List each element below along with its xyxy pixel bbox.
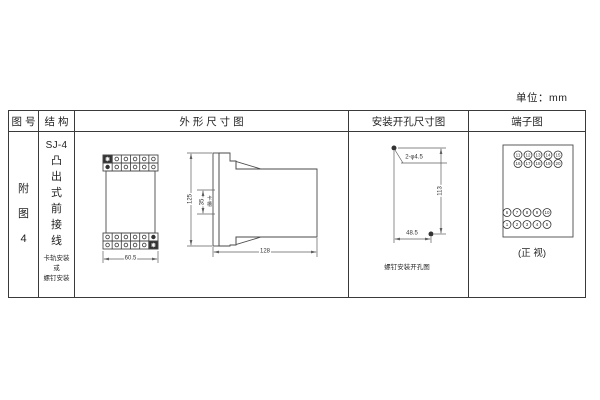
spec-table: 图 号 结 构 外 形 尺 寸 图 安装开孔尺寸图 端子图 附 图 4 SJ-4… — [8, 110, 586, 298]
unit-label: 单位：mm — [516, 90, 568, 105]
mounting-caption: 螺钉安装开孔图 — [384, 261, 430, 271]
vertical-spacing-value: 113 — [438, 185, 445, 197]
terminal-caption: (正 视) — [518, 245, 546, 259]
front-width-value: 60.5 — [124, 256, 138, 263]
slot-label: 卡 槽 — [207, 196, 212, 208]
cell-outline-drawing — [75, 132, 349, 297]
structure-type-label: 凸 出 式 前 接 线 — [51, 154, 62, 250]
cell-figure-no: 附 图 4 — [9, 132, 39, 297]
header-structure: 结 构 — [39, 111, 75, 132]
depth-value: 128 — [259, 249, 271, 256]
header-terminal-diagram: 端子图 — [469, 111, 585, 132]
hole-spec-value: 2-φ4.5 — [404, 155, 424, 162]
header-figure-no: 图 号 — [9, 111, 39, 132]
header-mounting-holes: 安装开孔尺寸图 — [349, 111, 469, 132]
header-outline-dimensions: 外 形 尺 寸 图 — [75, 111, 349, 132]
figure-number-label: 附 图 4 — [18, 177, 29, 253]
datasheet-page: 单位：mm 图 号 结 构 外 形 尺 寸 图 安装开孔尺寸图 端子图 附 图 … — [0, 0, 600, 400]
model-label: SJ-4 — [46, 140, 68, 151]
cell-terminal-drawing — [469, 132, 585, 297]
horizontal-spacing-value: 48.5 — [405, 231, 419, 238]
cell-structure: SJ-4 凸 出 式 前 接 线 卡轨安装 或 螺钉安装 — [39, 132, 75, 297]
slot-height-value: 35 — [199, 198, 206, 207]
height-value: 125 — [188, 193, 195, 205]
mounting-method-note: 卡轨安装 或 螺钉安装 — [44, 254, 70, 285]
